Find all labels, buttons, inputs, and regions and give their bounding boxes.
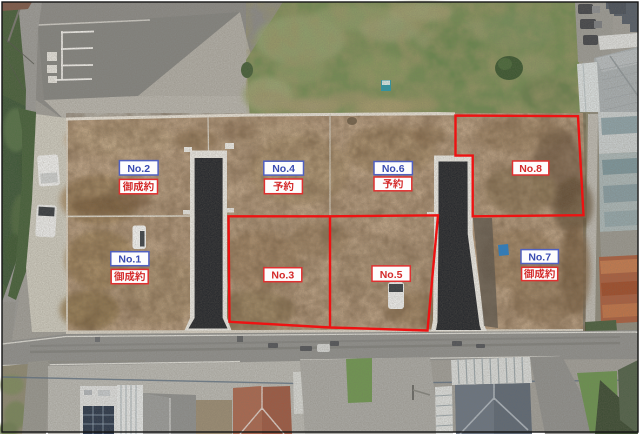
svg-text:No.2: No.2 (127, 163, 150, 175)
svg-text:No.8: No.8 (519, 163, 542, 175)
svg-text:No.4: No.4 (272, 163, 295, 175)
svg-text:No.3: No.3 (271, 270, 294, 282)
svg-text:No.1: No.1 (118, 254, 141, 266)
svg-text:No.7: No.7 (528, 252, 551, 264)
svg-text:No.5: No.5 (380, 269, 403, 281)
svg-text:No.6: No.6 (382, 163, 405, 175)
